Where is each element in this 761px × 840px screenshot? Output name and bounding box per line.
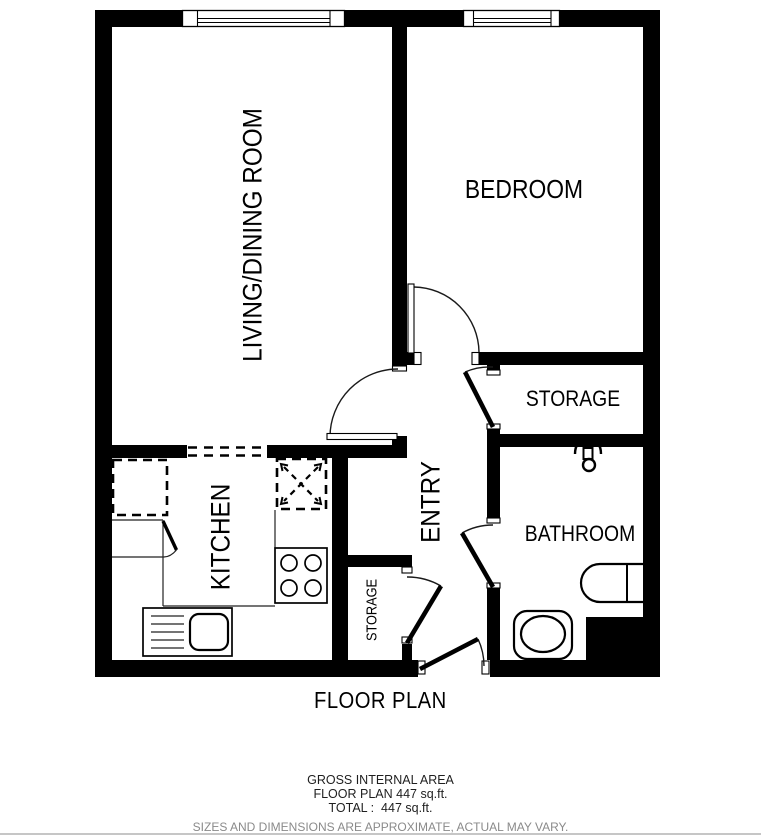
bedroom-door xyxy=(408,284,479,365)
bathroom-label: BATHROOM xyxy=(525,522,635,546)
room-labels: LIVING/DINING ROOM BEDROOM STORAGE BATHR… xyxy=(206,108,635,641)
kitchen-label: KITCHEN xyxy=(206,484,235,591)
floor-plan-area-line: FLOOR PLAN 447 sq.ft. xyxy=(0,787,761,801)
kitchen-sink-icon xyxy=(143,608,232,656)
kitchen-counter xyxy=(112,510,275,606)
disclaimer-text: SIZES AND DIMENSIONS ARE APPROXIMATE, AC… xyxy=(0,820,761,834)
entry-label: ENTRY xyxy=(416,461,445,543)
interior-walls xyxy=(112,27,643,660)
area-summary: GROSS INTERNAL AREA FLOOR PLAN 447 sq.ft… xyxy=(0,773,761,815)
floor-plan-page: LIVING/DINING ROOM BEDROOM STORAGE BATHR… xyxy=(0,0,761,840)
floor-plan-drawing: LIVING/DINING ROOM BEDROOM STORAGE BATHR… xyxy=(0,0,761,682)
storage-label: STORAGE xyxy=(526,387,620,411)
crossed-appliance-icon xyxy=(277,459,326,509)
total-area-line: TOTAL : 447 sq.ft. xyxy=(0,801,761,815)
closet-door xyxy=(402,567,441,643)
storage-door xyxy=(465,367,500,429)
fridge-dashed-icon xyxy=(113,460,167,515)
toilet-icon xyxy=(581,564,643,602)
plan-title-row: FLOOR PLAN xyxy=(0,687,761,714)
closet-storage-label: STORAGE xyxy=(362,579,379,641)
bathroom-door xyxy=(462,518,500,588)
front-door xyxy=(418,639,489,674)
gross-internal-area-line: GROSS INTERNAL AREA xyxy=(0,773,761,787)
page-title: FLOOR PLAN xyxy=(314,687,447,714)
bedroom-label: BEDROOM xyxy=(465,176,583,205)
stove-icon xyxy=(275,548,327,603)
bathroom-sink-icon xyxy=(514,611,572,659)
living-room-window-icon xyxy=(183,11,345,27)
bedroom-window-icon xyxy=(464,11,560,27)
exterior-walls xyxy=(95,10,660,677)
living-room-label: LIVING/DINING ROOM xyxy=(238,108,267,362)
living-room-door xyxy=(327,366,407,440)
pass-through-opening xyxy=(187,445,267,458)
bottom-divider xyxy=(0,833,761,835)
